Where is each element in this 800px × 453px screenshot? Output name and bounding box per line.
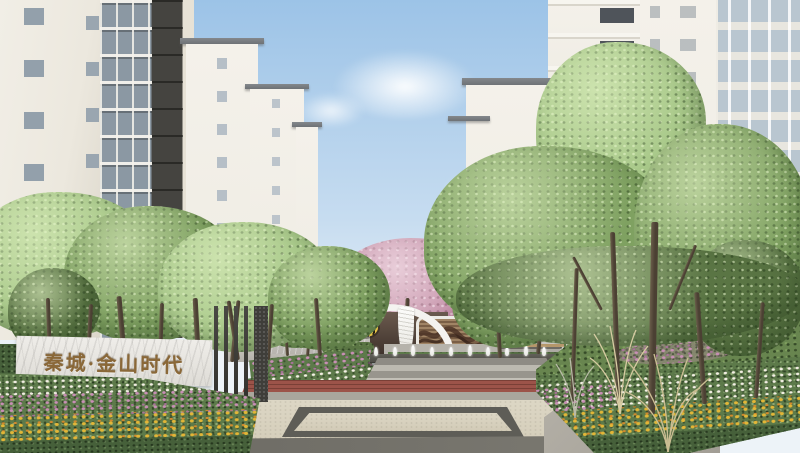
- fountain-jet: [449, 347, 453, 356]
- community-entrance-rendering: 秦城·金山时代: [0, 0, 800, 453]
- plaza-inlay-center: [294, 413, 512, 431]
- roof-cap: [462, 78, 558, 85]
- paving-band: [234, 392, 590, 401]
- fountain-jet: [542, 347, 546, 356]
- ornamental-grass-tuft: [552, 356, 598, 418]
- fence-slat: [214, 306, 218, 402]
- entrance-sign-text: 秦城·金山时代: [16, 346, 213, 379]
- slat-fence: [214, 306, 268, 402]
- fence-slat: [234, 306, 238, 402]
- fence-slat: [244, 306, 248, 402]
- cloud: [296, 92, 366, 126]
- fountain-jet: [393, 347, 397, 356]
- step-tread: [364, 371, 560, 378]
- fountain-jet: [374, 347, 378, 356]
- fountain-jet: [468, 345, 472, 356]
- fountain-jet: [430, 347, 434, 356]
- fence-pillar: [254, 306, 268, 402]
- fountain-jet: [505, 347, 509, 356]
- fence-slat: [224, 306, 228, 402]
- step-tread: [364, 358, 560, 365]
- fountain-jet: [486, 347, 490, 356]
- roof-cap: [448, 116, 490, 121]
- fountain-jet: [411, 345, 415, 356]
- ornamental-grass-tuft: [622, 348, 714, 452]
